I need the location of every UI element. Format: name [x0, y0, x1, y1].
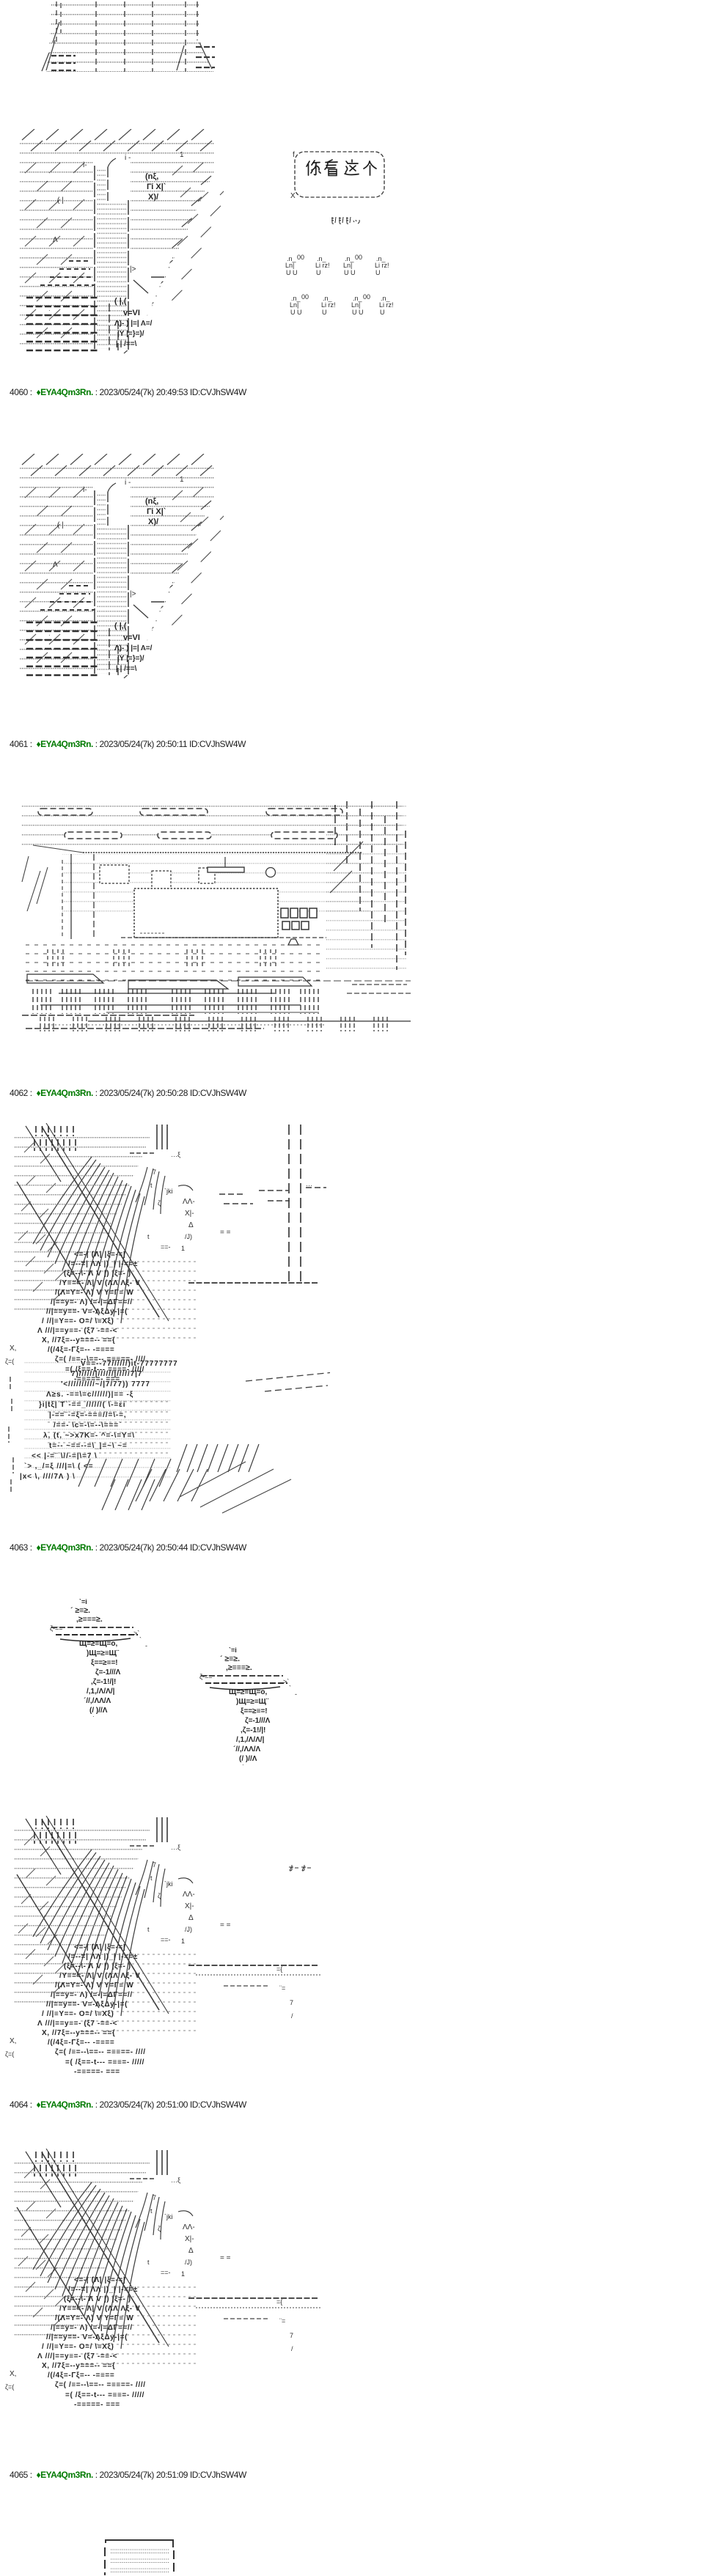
svg-text:ΛΛ-: ΛΛ-: [183, 2223, 195, 2231]
svg-text:U U: U U: [344, 269, 356, 276]
svg-text:ζ=-1///Λ: ζ=-1///Λ: [95, 1668, 121, 1677]
svg-text:=( /ξ==-t--- =≡≡=- /////: =( /ξ==-t--- =≡≡=- /////: [65, 2058, 144, 2067]
svg-text:/(/4ξ=-Γξ=-- -=≡==: /(/4ξ=-Γξ=-- -=≡==: [48, 2039, 114, 2047]
svg-text:1: 1: [181, 2270, 185, 2278]
svg-text:00: 00: [363, 293, 370, 301]
svg-text:(nξ,: (nξ,: [145, 172, 158, 181]
svg-text:…: …: [306, 1180, 312, 1188]
svg-text:|>: |>: [130, 590, 136, 598]
svg-text:X, //7ξ=--y===-- =={: X, //7ξ=--y===-- =={: [42, 2029, 115, 2037]
svg-text:Li rz!: Li rz!: [375, 262, 389, 269]
svg-text:(nξ,: (nξ,: [145, 497, 158, 506]
svg-text:/(/4ξ=-Γξ=-- -=≡==: /(/4ξ=-Γξ=-- -=≡==: [48, 1346, 114, 1354]
svg-text:= =: = =: [220, 1229, 231, 1237]
svg-text:ξ==≥≡=!: ξ==≥≡=!: [91, 1659, 118, 1667]
svg-text:ζ=(: ζ=(: [5, 2383, 14, 2391]
svg-text:…ξ: …ξ: [171, 1844, 180, 1851]
svg-text:t: t: [147, 2259, 150, 2266]
svg-text:7: 7: [290, 1999, 293, 2006]
svg-text:Λ ///|==y≡=- (ξ7 -=≡-<: Λ ///|==y≡=- (ξ7 -=≡-<: [37, 1327, 117, 1335]
svg-text:`=i: `=i: [229, 1646, 237, 1654]
svg-text:/: /: [291, 2345, 293, 2352]
svg-text:/J): /J): [185, 2259, 192, 2266]
svg-text:,≥≡≡≡≥.: ,≥≡≡≡≥.: [76, 1615, 103, 1624]
svg-text:Щ=≥≡Щ=o,: Щ=≥≡Щ=o,: [79, 1640, 117, 1648]
svg-text:,ζ=-1!/|!: ,ζ=-1!/|!: [241, 1726, 265, 1734]
svg-text:1: 1: [181, 1937, 185, 1945]
svg-text:v=VI: v=VI: [123, 309, 140, 317]
svg-text:| | /==\: | | /==\: [116, 665, 137, 673]
svg-text:Δ: Δ: [188, 1914, 194, 1922]
svg-text:U U: U U: [352, 309, 364, 316]
svg-text:)Щ=≥≡Щ¨: )Щ=≥≡Щ¨: [236, 1697, 269, 1706]
svg-text:ζ=( /≡=--\==-- =≡≡==- ////: ζ=( /≡=--\==-- =≡≡==- ////: [55, 2381, 146, 2389]
svg-text:·: ·: [48, 632, 51, 639]
svg-text:/J): /J): [185, 1926, 192, 1933]
svg-text:`jki: `jki: [164, 1188, 173, 1195]
svg-text:Li rz!: Li rz!: [315, 262, 330, 269]
svg-text:/: /: [291, 2012, 293, 2020]
svg-text:7: 7: [290, 2332, 293, 2339]
svg-text:( |,(: ( |,(: [114, 622, 127, 630]
svg-text:ζ=( /≡=--\==-- =≡≡==- ////: ζ=( /≡=--\==-- =≡≡==- ////: [55, 2048, 146, 2056]
svg-text:|>: |>: [130, 265, 136, 273]
svg-text:00: 00: [301, 293, 309, 301]
svg-text:`: `: [139, 1636, 142, 1644]
svg-text:U: U: [380, 309, 385, 316]
svg-text:|Y |=}=)/: |Y |=}=)/: [117, 655, 144, 663]
svg-text:´ ≥≡≥.: ´ ≥≡≥.: [220, 1655, 240, 1663]
svg-text:-: -: [145, 1642, 147, 1649]
svg-text:ζ: ζ: [158, 2225, 161, 2232]
svg-text:X: X: [290, 192, 296, 200]
svg-text:·: ·: [92, 1713, 95, 1720]
svg-text:ξ==≥≡=!: ξ==≥≡=!: [241, 1707, 268, 1715]
svg-text:Λ)- ) |=| Λ=/: Λ)- ) |=| Λ=/: [114, 644, 153, 652]
svg-text:00: 00: [355, 254, 362, 261]
svg-text:i-: i-: [83, 161, 87, 169]
svg-text:X,: X,: [10, 2037, 16, 2045]
svg-text:·: ·: [242, 1762, 244, 1768]
svg-text:X, //7ξ=--y===-- =={: X, //7ξ=--y===-- =={: [42, 1336, 115, 1344]
svg-text:Ln|: Ln|: [290, 301, 298, 309]
svg-text:Λ ///|==y≡=- (ξ7 -=≡-<: Λ ///|==y≡=- (ξ7 -=≡-<: [37, 2020, 117, 2028]
svg-text:X,: X,: [10, 1344, 16, 1353]
svg-text:( |: ( |: [57, 196, 64, 205]
svg-text:U U: U U: [290, 309, 302, 316]
svg-text:<=-| (Λ| |ξ=-=|: <=-| (Λ| |ξ=-=|: [74, 1251, 125, 1259]
svg-text:´//,/ΛΛ/Λ: ´//,/ΛΛ/Λ: [233, 1745, 261, 1753]
svg-text:U: U: [375, 269, 381, 276]
svg-text:00: 00: [297, 254, 304, 261]
svg-text:v=VI: v=VI: [123, 633, 140, 642]
svg-text:ΛΛ-: ΛΛ-: [183, 1891, 195, 1899]
svg-text:,≥≡≡≡≥.: ,≥≡≡≡≥.: [226, 1663, 252, 1672]
svg-text:| | /==\: | | /==\: [116, 340, 137, 348]
svg-text:X|-: X|-: [185, 1210, 194, 1218]
svg-text:= =: = =: [220, 2254, 231, 2262]
svg-text:X|-: X|-: [185, 1902, 194, 1910]
svg-text:Δ: Δ: [188, 2247, 194, 2255]
svg-text:t: t: [147, 1926, 150, 1933]
svg-text:X,: X,: [10, 2370, 16, 2378]
svg-text:==-: ==-: [161, 1243, 171, 1251]
svg-text:= =: = =: [220, 1921, 231, 1929]
svg-text:/(/4ξ=-Γξ=-- -=≡==: /(/4ξ=-Γξ=-- -=≡==: [48, 2371, 114, 2380]
svg-text:ζ-==: ζ-==: [50, 1624, 62, 1632]
svg-text:)Щ=≥≡Щ¨: )Щ=≥≡Щ¨: [87, 1649, 120, 1657]
svg-text:( |,(: ( |,(: [114, 297, 127, 306]
svg-text:( |: ( |: [57, 521, 64, 529]
svg-text:/,1,/Λ/Λ/|: /,1,/Λ/Λ/|: [236, 1736, 265, 1744]
svg-text:Δ: Δ: [188, 1221, 194, 1229]
svg-text:/,1,/Λ/Λ/|: /,1,/Λ/Λ/|: [87, 1688, 115, 1696]
svg-text:t: t: [147, 1233, 150, 1240]
svg-text:i -: i -: [125, 154, 131, 162]
svg-text:1: 1: [181, 1245, 185, 1252]
svg-text:Li rz!: Li rz!: [379, 301, 394, 309]
svg-text:ζ: ζ: [158, 1892, 161, 1899]
svg-text:X|-: X|-: [185, 2235, 194, 2243]
svg-text:Γί X|`: Γί X|`: [147, 507, 166, 516]
svg-text:X)/: X)/: [148, 518, 158, 526]
svg-text:Ln|: Ln|: [343, 262, 352, 269]
svg-text:U: U: [316, 269, 321, 276]
svg-text:ζ=-1///Λ: ζ=-1///Λ: [245, 1717, 271, 1725]
svg-text:Λ)- ) |=| Λ=/: Λ)- ) |=| Λ=/: [114, 320, 153, 328]
svg-text:¨=: ¨=: [279, 1984, 285, 1992]
svg-text:U: U: [322, 309, 327, 316]
svg-text:`jki: `jki: [164, 1880, 173, 1888]
svg-text:Щ=≥≡Щ=o,: Щ=≥≡Щ=o,: [229, 1688, 267, 1696]
svg-text:==-: ==-: [161, 2269, 171, 2276]
svg-text:-: -: [295, 1690, 297, 1698]
svg-text:ζ-==: ζ-==: [199, 1673, 212, 1680]
svg-text:t: t: [150, 2207, 153, 2215]
svg-text:1: 1: [180, 151, 184, 159]
svg-text:-=≡===- ===: -=≡===- ===: [74, 2068, 120, 2076]
svg-text:¨=: ¨=: [279, 2317, 285, 2325]
svg-text:7: 7: [153, 1169, 156, 1176]
svg-text:Ln|: Ln|: [285, 262, 294, 269]
svg-text:t: t: [150, 1874, 153, 1882]
svg-text:…ξ: …ξ: [171, 2176, 180, 2184]
svg-text:7: 7: [153, 1861, 156, 1869]
svg-text:Λ: Λ: [53, 561, 58, 569]
svg-text:=( /ξ==-t--- =≡≡=- /////: =( /ξ==-t--- =≡≡=- /////: [65, 2391, 144, 2399]
svg-text:={: ={: [276, 2298, 282, 2305]
svg-text:X)/: X)/: [148, 193, 158, 202]
svg-text:i -: i -: [125, 479, 131, 487]
svg-text:´ ≥≡≥.: ´ ≥≡≥.: [70, 1606, 90, 1615]
svg-text:f: f: [293, 151, 295, 159]
svg-text:Λ: Λ: [53, 236, 58, 244]
svg-text:U U: U U: [286, 269, 298, 276]
svg-text:,ζ=-1!/|!: ,ζ=-1!/|!: [91, 1678, 116, 1686]
svg-text:`=i: `=i: [79, 1598, 87, 1605]
svg-text:7: 7: [153, 2194, 156, 2201]
svg-text:`jki: `jki: [164, 2213, 173, 2220]
svg-text:Li rz!: Li rz!: [321, 301, 336, 309]
svg-text:´//,/ΛΛ/Λ: ´//,/ΛΛ/Λ: [84, 1697, 111, 1705]
svg-text:<=-| (Λ| |ξ=-=|: <=-| (Λ| |ξ=-=|: [74, 1943, 125, 1951]
svg-text:==-: ==-: [161, 1936, 171, 1943]
svg-text:t: t: [150, 1182, 153, 1189]
svg-text:…ξ: …ξ: [171, 1151, 180, 1158]
svg-text:-=≡===- ===: -=≡===- ===: [74, 2401, 120, 2409]
svg-text:X, //7ξ=--y===-- =={: X, //7ξ=--y===-- =={: [42, 2362, 115, 2370]
svg-text:`: `: [289, 1685, 291, 1692]
svg-text:ζ: ζ: [158, 1199, 161, 1207]
svg-text:Λ ///|==y≡=- (ξ7 -=≡-<: Λ ///|==y≡=- (ξ7 -=≡-<: [37, 2352, 117, 2360]
svg-text:1: 1: [180, 476, 184, 484]
svg-text:ΛΛ-: ΛΛ-: [183, 1198, 195, 1206]
svg-text:i-: i-: [83, 486, 87, 494]
svg-text:={: ={: [276, 1965, 282, 1973]
svg-text:/J): /J): [185, 1233, 192, 1240]
svg-text:Ln|: Ln|: [351, 301, 360, 309]
svg-text:·: ·: [48, 307, 51, 314]
svg-text:|Y |=}=)/: |Y |=}=)/: [117, 330, 144, 338]
svg-text:Γί X|`: Γί X|`: [147, 183, 166, 191]
svg-text:<=-| (Λ| |ξ=-=|: <=-| (Λ| |ξ=-=|: [74, 2276, 125, 2284]
svg-text:ζ=(: ζ=(: [5, 2050, 14, 2058]
